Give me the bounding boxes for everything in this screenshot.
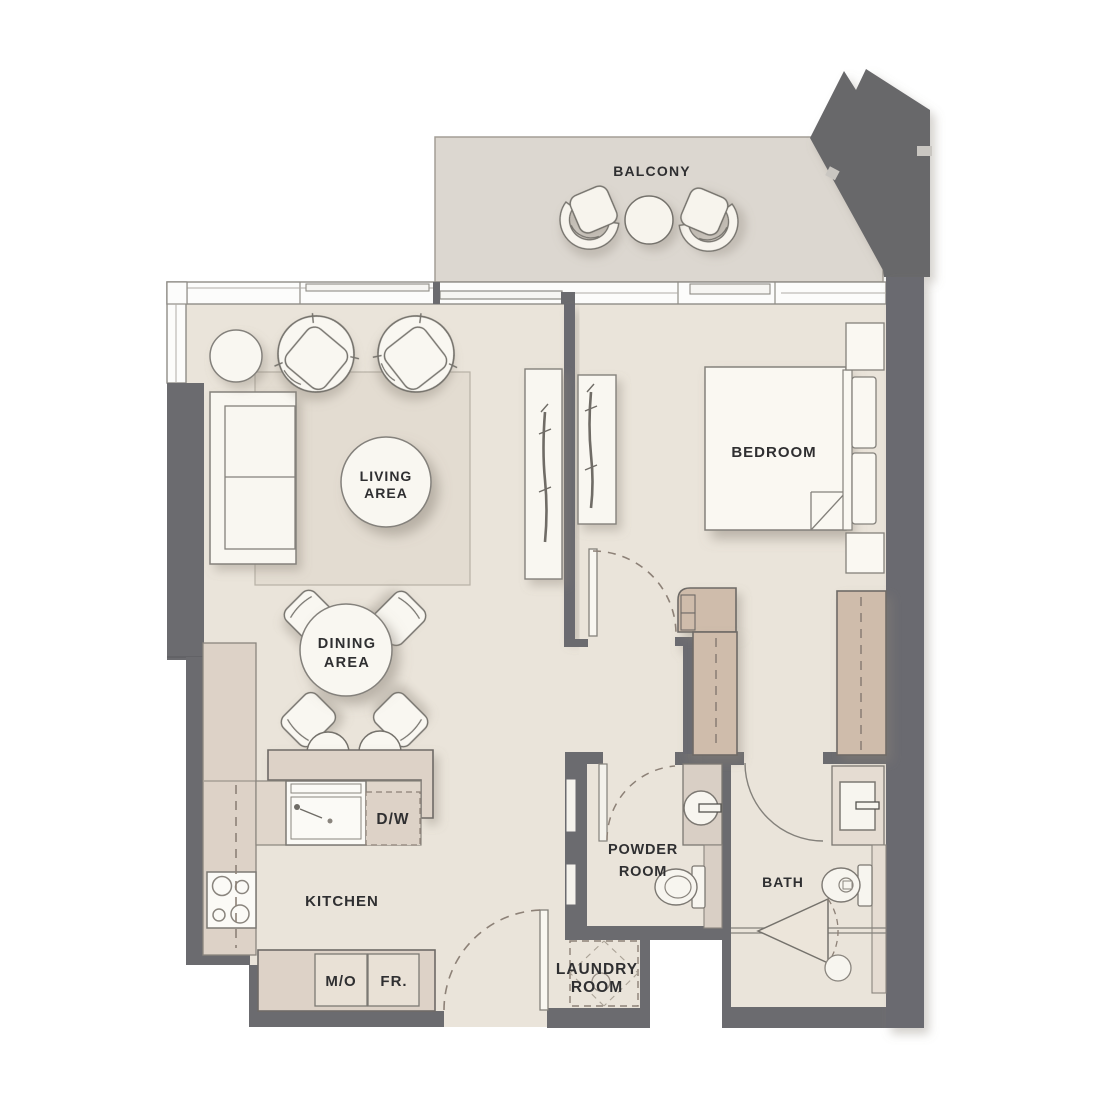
svg-text:AREA: AREA bbox=[364, 485, 408, 501]
svg-text:KITCHEN: KITCHEN bbox=[305, 893, 379, 910]
svg-text:FR.: FR. bbox=[380, 973, 407, 990]
svg-text:BATH: BATH bbox=[762, 874, 804, 890]
svg-text:ROOM: ROOM bbox=[571, 979, 623, 996]
svg-text:D/W: D/W bbox=[376, 811, 409, 828]
svg-text:LAUNDRY: LAUNDRY bbox=[556, 961, 638, 978]
svg-text:BEDROOM: BEDROOM bbox=[731, 444, 816, 461]
svg-text:ROOM: ROOM bbox=[619, 864, 667, 880]
svg-text:LIVING: LIVING bbox=[360, 468, 413, 484]
svg-text:BALCONY: BALCONY bbox=[613, 163, 691, 179]
svg-text:POWDER: POWDER bbox=[608, 842, 678, 858]
svg-text:AREA: AREA bbox=[324, 655, 370, 671]
svg-text:DINING: DINING bbox=[318, 636, 377, 652]
svg-text:M/O: M/O bbox=[325, 973, 356, 990]
